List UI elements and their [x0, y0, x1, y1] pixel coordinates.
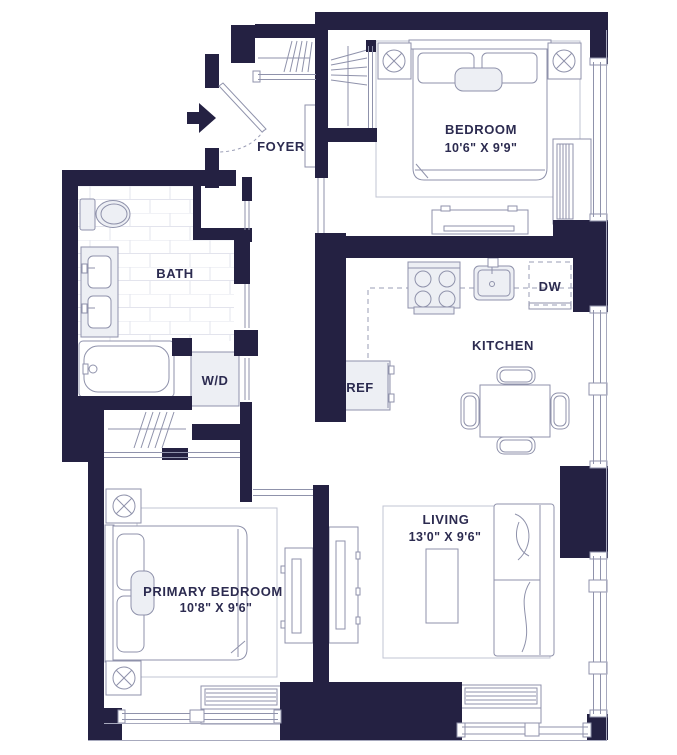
sink	[88, 296, 111, 328]
wall-segment	[88, 452, 104, 714]
bedroom-label: BEDROOM	[445, 122, 517, 137]
wall-segment	[240, 402, 252, 502]
living-bottom-window	[457, 723, 591, 737]
living-dims: 13'0" X 9'6"	[409, 530, 482, 544]
primary-closet	[108, 412, 186, 448]
bedroom-dims: 10'6" X 9'9"	[445, 141, 518, 155]
stove-front	[414, 307, 454, 314]
wall-segment	[327, 128, 377, 142]
primary-bedroom-dims: 10'8" X 9'6"	[180, 601, 253, 615]
primary-bedroom-label: PRIMARY BEDROOM	[143, 584, 283, 599]
stove-back	[408, 262, 460, 268]
wall-segment	[193, 228, 242, 240]
bedroom-opening	[318, 178, 324, 233]
sink	[88, 256, 111, 288]
wall-segment	[231, 25, 255, 63]
foyer-closet	[258, 41, 312, 72]
wd-door	[245, 358, 249, 400]
wall-segment	[315, 233, 346, 422]
wall-segment	[315, 30, 328, 178]
wall-segment	[172, 338, 192, 356]
bathtub	[79, 341, 174, 397]
entry-arrow-icon	[187, 103, 216, 133]
wall-segment	[590, 12, 608, 64]
hangers-icon	[284, 41, 312, 72]
bath-door	[245, 284, 249, 328]
dining-table	[480, 385, 550, 437]
wall-segment	[255, 24, 317, 38]
ptac-unit	[553, 139, 591, 224]
faucet-icon	[82, 304, 87, 313]
wall-segment	[560, 466, 608, 558]
wall-segment	[205, 54, 219, 88]
living-label: LIVING	[423, 512, 470, 527]
wall-segment	[193, 186, 201, 234]
kitchen-window	[589, 306, 607, 468]
floor-plan-page: FOYER BEDROOM 10'6" X 9'9" BATH W/D DW R…	[0, 0, 677, 755]
wall-segment	[242, 228, 252, 242]
wall-segment	[234, 240, 250, 284]
wall-segment	[62, 170, 78, 410]
wall-segment	[315, 12, 608, 30]
closet-door	[258, 75, 316, 80]
hangers-icon	[331, 50, 367, 85]
wall-segment	[553, 220, 608, 242]
wall-segment	[62, 396, 192, 410]
toilet-tank	[80, 199, 95, 230]
refrigerator-label: REF	[346, 380, 374, 395]
kitchen-faucet-icon	[488, 258, 498, 267]
wall-segment	[280, 682, 462, 740]
accent-pillow	[455, 68, 502, 91]
living-window	[589, 552, 607, 717]
wall-segment	[162, 448, 188, 460]
primary-bedroom-opening	[253, 490, 313, 496]
coffee-table	[426, 549, 458, 623]
dishwasher-label: DW	[539, 279, 562, 294]
bath-label: BATH	[156, 266, 194, 281]
bed-headboard	[409, 40, 551, 49]
foyer-label: FOYER	[257, 139, 305, 154]
floor-plan: FOYER BEDROOM 10'6" X 9'9" BATH W/D DW R…	[0, 0, 677, 755]
wall-segment	[366, 40, 376, 52]
wall-segment	[573, 258, 608, 312]
kitchen-label: KITCHEN	[472, 338, 534, 353]
wall-segment	[62, 170, 236, 186]
hall-closet-door	[245, 201, 249, 230]
faucet-icon	[82, 264, 87, 273]
wall-segment	[242, 177, 252, 201]
dresser	[285, 548, 313, 643]
entry-door-leaf	[219, 83, 266, 132]
bedroom-closet	[331, 46, 367, 126]
bedroom-window	[590, 58, 607, 221]
closet-door	[369, 46, 373, 128]
washer-dryer-label: W/D	[202, 373, 229, 388]
hangers-icon	[134, 412, 174, 448]
tv-console	[329, 527, 358, 643]
wall-segment	[234, 330, 258, 356]
